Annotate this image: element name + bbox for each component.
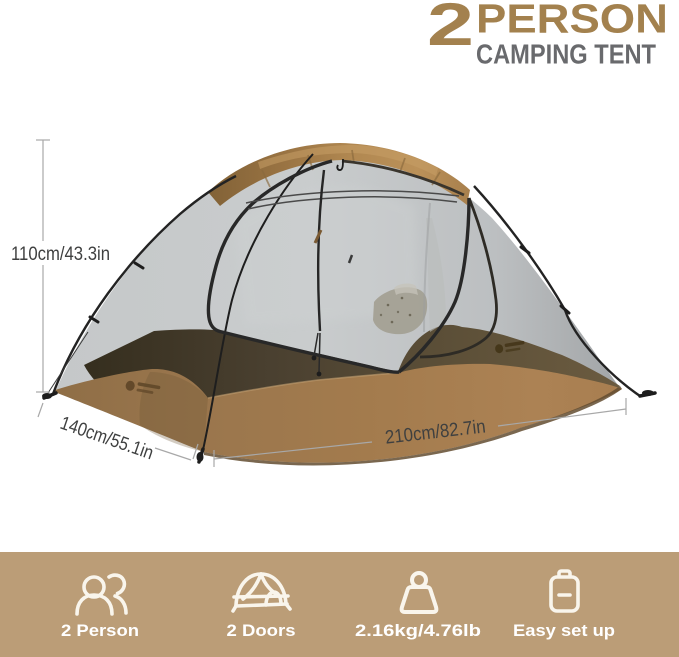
svg-text:2.16kg/4.76lb: 2.16kg/4.76lb <box>355 621 481 640</box>
svg-text:Easy set up: Easy set up <box>513 621 615 640</box>
svg-text:2 Doors: 2 Doors <box>227 621 296 640</box>
svg-text:110cm/43.3in: 110cm/43.3in <box>11 244 110 265</box>
svg-text:CAMPING TENT: CAMPING TENT <box>476 39 656 70</box>
svg-text:PERSON: PERSON <box>476 0 668 42</box>
svg-text:2 Person: 2 Person <box>61 621 139 640</box>
svg-text:2: 2 <box>427 0 474 58</box>
